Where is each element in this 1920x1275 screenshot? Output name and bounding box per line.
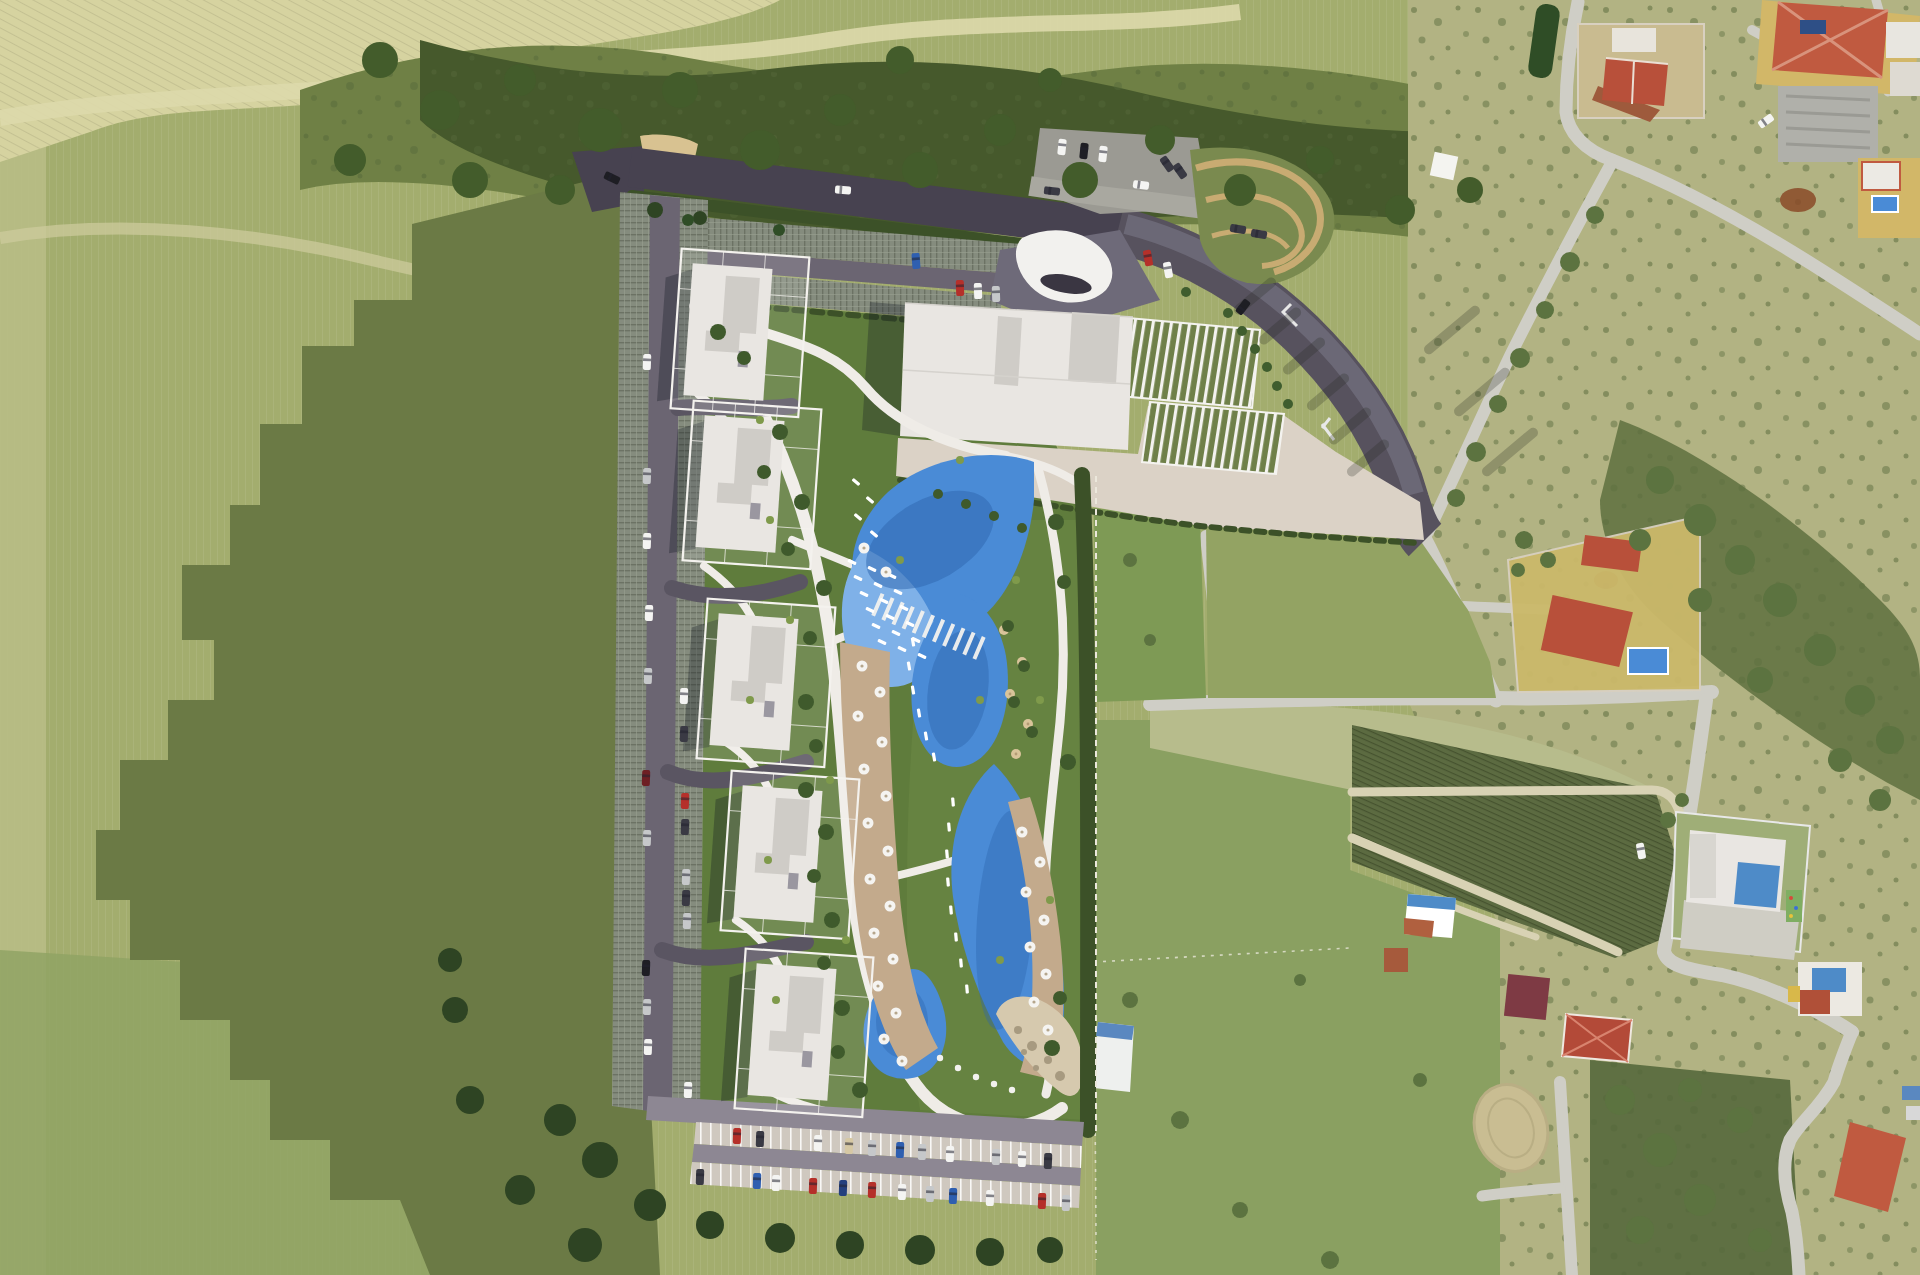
tree bbox=[781, 542, 795, 556]
tree bbox=[817, 956, 831, 970]
apartment-building-2 bbox=[669, 400, 822, 570]
car bbox=[926, 1186, 935, 1202]
shrub bbox=[956, 456, 964, 464]
car bbox=[1098, 146, 1108, 163]
red-roof-house bbox=[1562, 1014, 1632, 1062]
villa-roof-blue bbox=[1812, 968, 1846, 992]
tree bbox=[1725, 545, 1755, 575]
tree bbox=[1385, 195, 1415, 225]
villa-pool-east bbox=[1858, 158, 1920, 238]
umbrella-icon bbox=[869, 928, 880, 939]
umbrella-icon bbox=[863, 818, 874, 829]
tree bbox=[905, 1235, 935, 1265]
umbrella-icon bbox=[859, 543, 870, 554]
school-roof-blue bbox=[1734, 862, 1780, 908]
shrub bbox=[842, 936, 850, 944]
tree bbox=[1763, 583, 1797, 617]
tree bbox=[662, 72, 698, 108]
tree bbox=[1678, 1078, 1702, 1102]
tree bbox=[582, 1142, 618, 1178]
tree bbox=[1262, 362, 1272, 372]
tree bbox=[886, 46, 914, 74]
tree bbox=[961, 499, 971, 509]
tree bbox=[504, 64, 536, 96]
play-equipment-1 bbox=[1789, 896, 1793, 900]
umbrella-icon bbox=[857, 661, 868, 672]
tree bbox=[1223, 308, 1233, 318]
umbrella-icon bbox=[865, 874, 876, 885]
tree bbox=[816, 580, 832, 596]
umbrella-icon bbox=[853, 711, 864, 722]
tree bbox=[334, 144, 366, 176]
stepping-stone bbox=[937, 1055, 943, 1061]
shrub bbox=[772, 996, 780, 1004]
umbrella-icon bbox=[891, 1008, 902, 1019]
tree bbox=[1048, 514, 1064, 530]
school-playground bbox=[1786, 890, 1802, 922]
umbrella-icon bbox=[1025, 942, 1036, 953]
shrub bbox=[996, 956, 1004, 964]
car bbox=[753, 1173, 762, 1189]
car bbox=[992, 1149, 1001, 1165]
tree bbox=[568, 1228, 602, 1262]
villa-southeast bbox=[1788, 962, 1862, 1016]
car bbox=[974, 283, 983, 299]
umbrella-icon bbox=[1011, 749, 1021, 759]
umbrella-icon bbox=[1017, 827, 1028, 838]
tree bbox=[1447, 489, 1465, 507]
umbrella-icon bbox=[1039, 915, 1050, 926]
shrub bbox=[1046, 896, 1054, 904]
small-shed bbox=[1384, 948, 1408, 972]
tree bbox=[578, 108, 622, 152]
tree bbox=[1008, 696, 1020, 708]
tree bbox=[772, 424, 788, 440]
soil-patch-1 bbox=[1780, 188, 1816, 212]
tree bbox=[834, 1000, 850, 1016]
tree bbox=[1510, 348, 1530, 368]
warehouse-gray bbox=[1778, 86, 1878, 162]
tree bbox=[1536, 301, 1554, 319]
tree bbox=[1869, 789, 1891, 811]
boulder bbox=[1014, 1026, 1022, 1034]
tree bbox=[710, 324, 726, 340]
car bbox=[896, 1142, 905, 1158]
villa-pool bbox=[1872, 196, 1898, 212]
aerial-site-plan bbox=[0, 0, 1920, 1275]
tree bbox=[1122, 992, 1138, 1008]
tree bbox=[1804, 634, 1836, 666]
car bbox=[949, 1188, 958, 1204]
car bbox=[809, 1178, 818, 1194]
car bbox=[1079, 143, 1089, 160]
shrub bbox=[746, 696, 754, 704]
tree bbox=[794, 494, 810, 510]
umbrella-icon bbox=[1021, 887, 1032, 898]
tree bbox=[740, 130, 780, 170]
car bbox=[696, 1169, 705, 1185]
tree bbox=[1057, 575, 1071, 589]
tree bbox=[831, 1045, 845, 1059]
villa-house bbox=[1862, 162, 1900, 190]
tree bbox=[1828, 748, 1852, 772]
tree bbox=[682, 214, 694, 226]
villa-compound-north bbox=[1578, 24, 1704, 122]
tree bbox=[456, 1086, 484, 1114]
blue-roof-sliver bbox=[1902, 1086, 1920, 1100]
tree bbox=[1060, 754, 1076, 770]
umbrella-icon bbox=[885, 901, 896, 912]
tree bbox=[1306, 146, 1334, 174]
tree bbox=[809, 739, 823, 753]
stepping-stone bbox=[955, 1065, 961, 1071]
play-equipment-2 bbox=[1794, 906, 1798, 910]
tree bbox=[1629, 529, 1651, 551]
umbrella-icon bbox=[881, 791, 892, 802]
car bbox=[1057, 139, 1067, 156]
tree bbox=[1646, 466, 1674, 494]
tree bbox=[1026, 726, 1038, 738]
roof-vent bbox=[764, 701, 775, 718]
tree bbox=[1294, 974, 1306, 986]
tree bbox=[1684, 504, 1716, 536]
car bbox=[772, 1175, 781, 1191]
shrub bbox=[1012, 576, 1020, 584]
car bbox=[643, 533, 652, 549]
apartment-building-5 bbox=[721, 948, 874, 1118]
car bbox=[733, 1128, 742, 1144]
tree bbox=[1123, 553, 1137, 567]
boundary-hedge-east bbox=[1082, 475, 1088, 1130]
tree bbox=[1586, 206, 1604, 224]
tree bbox=[1321, 1251, 1339, 1269]
tree bbox=[647, 202, 663, 218]
tree bbox=[1037, 1237, 1063, 1263]
tree bbox=[1560, 252, 1580, 272]
tree bbox=[824, 94, 856, 126]
lawn-west-cell bbox=[1094, 508, 1206, 702]
parcel-pool bbox=[1628, 648, 1668, 674]
tree bbox=[438, 948, 462, 972]
maroon-warehouse bbox=[1504, 974, 1550, 1020]
clubhouse-building bbox=[862, 302, 1133, 450]
shrub bbox=[1036, 696, 1044, 704]
villa-roof-red bbox=[1800, 990, 1830, 1014]
car bbox=[645, 605, 654, 621]
tree bbox=[545, 175, 575, 205]
tree bbox=[1684, 1184, 1716, 1216]
boulder bbox=[1027, 1041, 1037, 1051]
tree bbox=[1660, 812, 1676, 828]
roof-vent bbox=[788, 873, 799, 890]
white-house-edge-1 bbox=[1886, 22, 1920, 58]
tree bbox=[976, 1238, 1004, 1266]
shrub bbox=[766, 516, 774, 524]
white-shed bbox=[1430, 152, 1458, 180]
umbrella-icon bbox=[883, 846, 894, 857]
car bbox=[642, 770, 651, 786]
school-wing bbox=[1690, 834, 1716, 898]
tree bbox=[1018, 660, 1030, 672]
shrub bbox=[826, 776, 834, 784]
car bbox=[992, 286, 1001, 302]
car bbox=[681, 793, 690, 809]
boulder bbox=[1033, 1065, 1039, 1071]
tree bbox=[1017, 523, 1027, 533]
car bbox=[643, 354, 652, 370]
white-house-edge-2 bbox=[1890, 62, 1920, 96]
tree bbox=[442, 997, 468, 1023]
tree bbox=[1727, 1107, 1753, 1133]
white-roof-sliver bbox=[1906, 1106, 1920, 1120]
car bbox=[898, 1184, 907, 1200]
umbrella-icon bbox=[888, 954, 899, 965]
tree bbox=[933, 489, 943, 499]
tree bbox=[1250, 344, 1260, 354]
tree bbox=[1237, 326, 1247, 336]
tree bbox=[1413, 1073, 1427, 1087]
shrub bbox=[786, 616, 794, 624]
tree bbox=[852, 1082, 868, 1098]
tree bbox=[807, 869, 821, 883]
tree bbox=[1511, 563, 1525, 577]
car bbox=[1062, 1195, 1071, 1211]
umbrella-icon bbox=[881, 567, 892, 578]
car bbox=[839, 1180, 848, 1196]
tree bbox=[1062, 162, 1098, 198]
car bbox=[835, 185, 852, 194]
umbrella-icon bbox=[1029, 997, 1040, 1008]
tree bbox=[798, 694, 814, 710]
tree bbox=[1171, 1111, 1189, 1129]
car bbox=[911, 253, 920, 270]
car bbox=[680, 688, 689, 704]
play-equipment-3 bbox=[1789, 914, 1793, 918]
pergola-b-beams bbox=[1142, 402, 1284, 474]
aerial-screenshot bbox=[0, 0, 1920, 1275]
umbrella-icon bbox=[1041, 969, 1052, 980]
tree bbox=[1643, 1133, 1677, 1167]
umbrella-icon bbox=[1043, 1025, 1054, 1036]
boulder bbox=[1021, 1049, 1027, 1055]
boulder bbox=[1055, 1071, 1065, 1081]
tree bbox=[984, 114, 1016, 146]
tree bbox=[818, 824, 834, 840]
car bbox=[1018, 1151, 1027, 1167]
roof-vent bbox=[802, 1051, 813, 1068]
car bbox=[644, 668, 653, 684]
car bbox=[644, 1039, 653, 1055]
tree bbox=[1232, 1202, 1248, 1218]
tree bbox=[1181, 287, 1191, 297]
tree bbox=[773, 224, 785, 236]
tree bbox=[1053, 991, 1067, 1005]
umbrella-icon bbox=[897, 1056, 908, 1067]
shrub bbox=[764, 856, 772, 864]
stepping-stone bbox=[991, 1081, 997, 1087]
tree bbox=[1145, 125, 1175, 155]
tree bbox=[1748, 1228, 1772, 1252]
car bbox=[681, 819, 690, 835]
umbrella-icon bbox=[879, 1034, 890, 1045]
car bbox=[868, 1140, 877, 1156]
tree bbox=[634, 1189, 666, 1221]
tree bbox=[989, 511, 999, 521]
tree bbox=[737, 351, 751, 365]
tree bbox=[1540, 552, 1556, 568]
tree bbox=[1675, 793, 1689, 807]
tree bbox=[824, 912, 840, 928]
shrub bbox=[756, 416, 764, 424]
car bbox=[682, 890, 691, 906]
villa-red-roof bbox=[1602, 58, 1668, 106]
tree bbox=[1272, 381, 1282, 391]
car bbox=[918, 1144, 927, 1160]
tree bbox=[693, 211, 707, 225]
umbrella-icon bbox=[877, 737, 888, 748]
tree bbox=[1224, 174, 1256, 206]
shrub bbox=[896, 556, 904, 564]
tree bbox=[1626, 1216, 1654, 1244]
car bbox=[682, 869, 691, 885]
car bbox=[643, 830, 652, 846]
tree bbox=[1002, 620, 1014, 632]
tree bbox=[1688, 588, 1712, 612]
tree bbox=[1747, 667, 1773, 693]
yellow-shed bbox=[1788, 986, 1800, 1002]
car bbox=[642, 960, 651, 976]
tree bbox=[1144, 634, 1156, 646]
stepping-stone bbox=[1009, 1087, 1015, 1093]
car bbox=[956, 280, 965, 296]
tree bbox=[505, 1175, 535, 1205]
tree bbox=[1515, 531, 1533, 549]
tree bbox=[757, 465, 771, 479]
car bbox=[946, 1146, 955, 1162]
tree bbox=[452, 162, 488, 198]
tree bbox=[1283, 399, 1293, 409]
tree bbox=[1044, 1040, 1060, 1056]
car bbox=[643, 468, 652, 484]
apartment-building-1 bbox=[657, 248, 810, 418]
car bbox=[814, 1135, 823, 1151]
tree bbox=[1845, 685, 1875, 715]
car bbox=[1044, 1153, 1053, 1169]
car bbox=[680, 726, 689, 742]
umbrella-icon bbox=[859, 764, 870, 775]
car bbox=[986, 1190, 995, 1206]
car bbox=[643, 999, 652, 1015]
tree bbox=[1466, 442, 1486, 462]
solar-panel bbox=[1800, 20, 1826, 34]
tree bbox=[798, 782, 814, 798]
tree bbox=[803, 631, 817, 645]
tree bbox=[836, 1231, 864, 1259]
boulder bbox=[1044, 1056, 1052, 1064]
car bbox=[756, 1131, 765, 1147]
school-complex bbox=[1672, 812, 1810, 960]
umbrella-icon bbox=[1035, 857, 1046, 868]
villa-outbuilding bbox=[1612, 28, 1656, 52]
car bbox=[1038, 1193, 1047, 1209]
clubhouse-roof-block-2 bbox=[1068, 312, 1120, 384]
roof-vent bbox=[750, 503, 761, 520]
shrub bbox=[976, 696, 984, 704]
tree bbox=[420, 90, 460, 130]
tree bbox=[544, 1104, 576, 1136]
car bbox=[1044, 186, 1061, 196]
tree bbox=[1457, 177, 1483, 203]
car bbox=[868, 1182, 877, 1198]
tree bbox=[1038, 68, 1062, 92]
tree bbox=[902, 152, 938, 188]
car bbox=[845, 1138, 854, 1154]
umbrella-icon bbox=[875, 687, 886, 698]
tree bbox=[696, 1211, 724, 1239]
tree bbox=[765, 1223, 795, 1253]
umbrella-icon bbox=[873, 981, 884, 992]
stepping-stone bbox=[973, 1074, 979, 1080]
tree bbox=[1876, 726, 1904, 754]
tree bbox=[1605, 1085, 1635, 1115]
tree bbox=[362, 42, 398, 78]
tree bbox=[1489, 395, 1507, 413]
car bbox=[684, 1082, 693, 1098]
car bbox=[683, 913, 692, 929]
